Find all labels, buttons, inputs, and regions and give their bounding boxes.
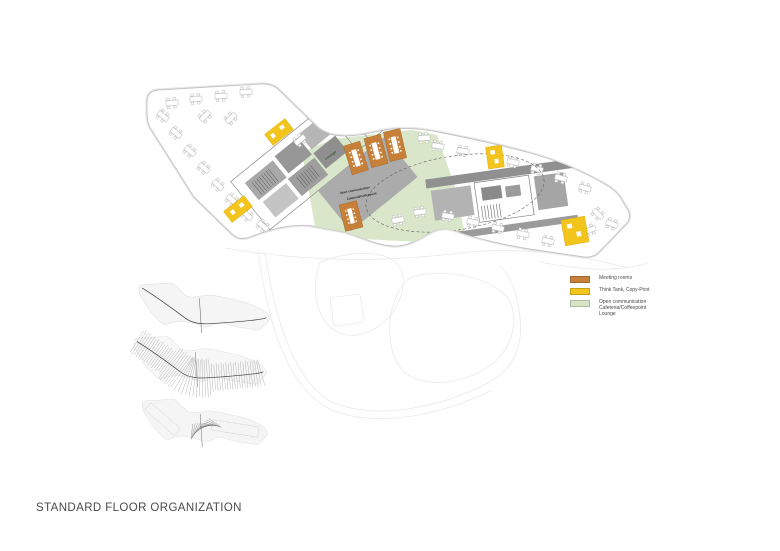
page: Lounge Open communication Cafeteria/Coff… bbox=[0, 0, 780, 551]
building-plan: Lounge Open communication Cafeteria/Coff… bbox=[0, 0, 630, 301]
legend-label: Think Tank, Copy-Print bbox=[599, 287, 649, 293]
legend-label: Open communication Cafeteria/Coffeepoint… bbox=[599, 299, 646, 317]
legend-item-think-tank: Think Tank, Copy-Print bbox=[570, 287, 690, 295]
legend-label: Meeting rooms bbox=[599, 275, 632, 281]
concept-diagram-wings bbox=[142, 399, 267, 447]
legend-item-open-communication: Open communication Cafeteria/Coffeepoint… bbox=[570, 299, 690, 317]
open-communication-swatch bbox=[570, 300, 590, 307]
legend-item-meeting-rooms: Meeting rooms bbox=[570, 275, 690, 283]
legend: Meeting rooms Think Tank, Copy-Print Ope… bbox=[570, 275, 690, 321]
meeting-rooms-swatch bbox=[570, 276, 590, 283]
concept-diagram-ribs bbox=[130, 331, 266, 398]
site-outlines bbox=[225, 248, 648, 419]
think-tank-swatch bbox=[570, 288, 590, 295]
page-title: STANDARD FLOOR ORGANIZATION bbox=[36, 502, 242, 514]
concept-diagram-spine bbox=[139, 283, 269, 333]
